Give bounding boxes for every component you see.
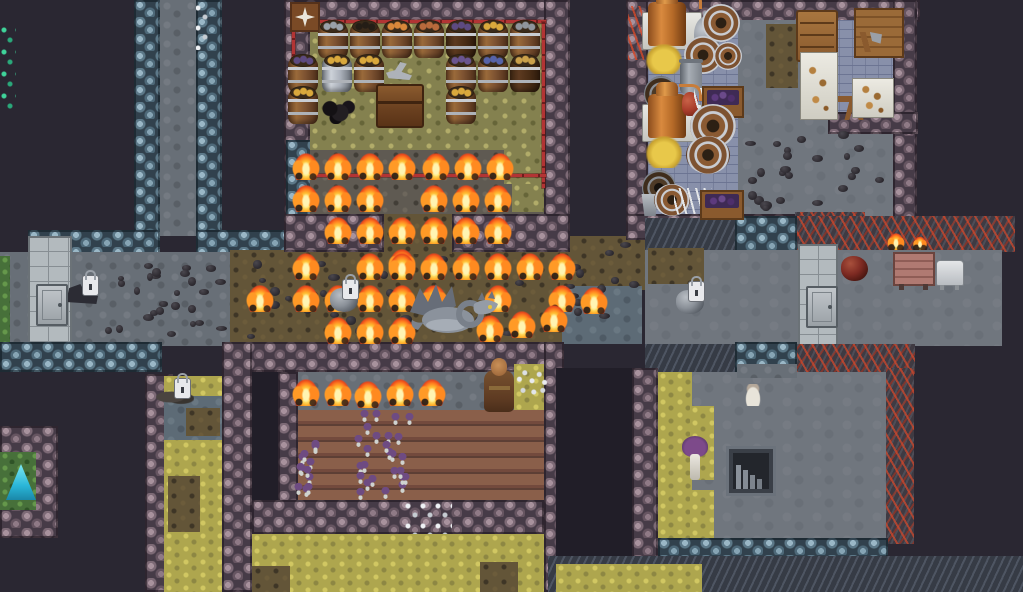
plump-helmet-crop [372,410,381,422]
small-white-animal[interactable] [744,384,762,406]
loose-stone [116,325,123,333]
fire-tile [482,212,514,244]
fire-tile [244,280,276,312]
fire-tile [354,248,386,280]
floor-dirt [252,566,290,592]
loose-stone [848,173,856,181]
fire-tile [420,148,452,180]
loose-stone [757,168,765,177]
barrel[interactable] [288,90,318,124]
fire-tile [514,248,546,280]
loose-stone [174,290,181,296]
loose-stone [167,331,176,337]
loose-stone [748,191,757,200]
fire-tile [322,374,354,406]
loose-stone [620,242,631,248]
wall-redvein [886,368,914,544]
floor-olive [512,184,544,212]
loose-stone [748,177,756,184]
loose-stone [152,268,161,276]
wall-dark [645,218,737,252]
wall-dark [645,344,737,374]
wall-bluegray [735,216,797,252]
fire-tile [354,148,386,180]
barrel[interactable] [322,58,352,92]
coal-pile [318,96,358,124]
dwarf-citizen[interactable] [484,370,514,412]
wall-mauve [632,368,658,560]
loose-stone [605,250,614,256]
map-canvas[interactable] [0,0,1023,592]
floor-cobble [737,364,797,378]
plump-helmet-crop [294,483,303,495]
fire-tile [450,180,482,212]
loose-stone [195,320,204,326]
fire-tile [538,300,570,332]
fire-tile [322,180,354,212]
forbidden-marker [688,281,705,302]
forbidden-marker [82,275,99,296]
loose-stone [105,327,112,334]
fire-tile [450,212,482,244]
barrel[interactable] [510,58,540,92]
wall-bluegray [0,342,162,372]
loose-stone [188,277,196,286]
loose-stone [206,265,217,271]
hops-pile [646,44,682,74]
fire-tile [386,148,418,180]
barrel[interactable] [478,24,508,58]
lever[interactable] [290,2,320,32]
fire-tile [450,248,482,280]
north-corridor-floor [160,0,196,236]
wall-mauve [544,0,570,250]
plump-helmet-crop [363,423,372,435]
barrel[interactable] [446,24,476,58]
fire-tile [354,212,386,244]
fire-tile [354,180,386,212]
plump-helmet-crop [396,467,405,479]
forbidden-marker [342,279,359,300]
barreltop[interactable] [714,42,742,70]
fire-tile [912,234,928,250]
fire-tile [290,148,322,180]
wooden-chest[interactable] [376,84,424,128]
fire-tile [384,374,416,406]
barreltop[interactable] [686,136,730,174]
floor-fungus [690,490,714,540]
axe [850,32,882,52]
loose-stone [253,260,262,268]
cave-mushroom[interactable] [680,436,710,480]
barrel[interactable] [414,24,444,58]
barrel[interactable] [382,24,412,58]
loose-stone [611,277,618,283]
fire-tile [322,148,354,180]
brick-table[interactable] [893,252,935,286]
plump-helmet-crop [382,441,391,453]
wall-mauve [222,342,564,372]
farm-plot [298,410,544,502]
pig-tail-plants [514,368,550,400]
loose-stone [762,205,770,212]
white-mineral-vein [194,2,210,50]
fire-tile [386,212,418,244]
plump-helmet-crop [398,453,407,465]
plump-helmet-crop [391,413,400,425]
wall-mauve [252,500,544,534]
fire-tile [322,312,354,344]
loose-stone [199,289,209,294]
fire-tile [290,280,322,312]
floor-dirt [766,24,798,88]
stone-door-west[interactable] [36,284,68,326]
white-mineral-vein [404,500,452,534]
fire-tile [418,248,450,280]
fire-tile [578,282,610,314]
loose-stone [629,281,639,289]
loose-stone [247,334,255,339]
fire-tile [386,248,418,280]
green-mineral-vein [0,24,16,112]
plump-helmet-crop [354,435,363,447]
plump-helmet-crop [405,413,414,425]
loose-stone [780,166,791,173]
loose-stone [797,136,806,143]
plum-crate[interactable] [700,190,744,220]
plump-helmet-crop [394,433,403,445]
fire-tile [416,374,448,406]
plump-helmet-crop [368,475,377,487]
barrel[interactable] [350,24,380,58]
darker [556,368,632,558]
loose-stone [188,305,196,313]
fire-tile [290,248,322,280]
fire-tile [886,230,906,250]
loose-stone [875,177,884,183]
barrel[interactable] [318,24,348,58]
loose-stone [171,302,179,310]
plump-helmet-crop [304,483,313,495]
wall-mauve [222,342,252,592]
fire-tile [322,212,354,244]
fire-tile [418,180,450,212]
fire-tile [452,148,484,180]
barrel[interactable] [478,58,508,92]
fire-tile [484,148,516,180]
forbidden-marker [174,378,191,399]
plump-helmet-crop [300,450,309,462]
fire-tile [352,376,384,408]
floor-fungus [556,564,702,592]
copper-still[interactable] [648,94,686,138]
fire-tile [482,248,514,280]
loose-stone [773,141,781,147]
fire-tile [354,312,386,344]
wall-bluegray [134,0,160,236]
loose-stone [785,172,793,179]
plump-helmet-crop [363,445,372,457]
red-boulder[interactable] [841,256,868,281]
fire-tile [546,248,578,280]
loose-stone [134,287,140,294]
plump-helmet-crop [303,466,312,478]
floor-dirt [480,562,518,592]
fire-tile [290,374,322,406]
loose-stone [783,152,792,160]
fire-tile [290,180,322,212]
hops-pile [646,136,682,168]
loose-stone [159,301,167,307]
loose-stone [776,197,785,204]
barrel[interactable] [446,90,476,124]
fire-tile [506,306,538,338]
dragon[interactable] [404,278,504,344]
plump-helmet-crop [372,432,381,444]
floor-dirt [186,408,220,436]
burrow-boundary-line [542,22,545,188]
copper-still[interactable] [648,2,686,46]
floor-dirt [168,476,200,532]
metal-bars[interactable] [726,446,776,496]
fire-tile [418,212,450,244]
plump-helmet-crop [360,461,369,473]
plump-helmet-crop [360,410,369,422]
plump-helmet-crop [356,472,365,484]
carpenter-workbench[interactable] [800,52,838,120]
fire-tile [482,180,514,212]
barrel[interactable] [510,24,540,58]
plump-helmet-crop [311,440,320,452]
plump-helmet-crop [381,487,390,499]
floor-grass [0,256,10,344]
loose-stone [812,155,823,162]
stone-stool[interactable] [936,260,964,286]
stone-door-east[interactable] [806,286,838,328]
tool-bench[interactable] [852,78,894,118]
